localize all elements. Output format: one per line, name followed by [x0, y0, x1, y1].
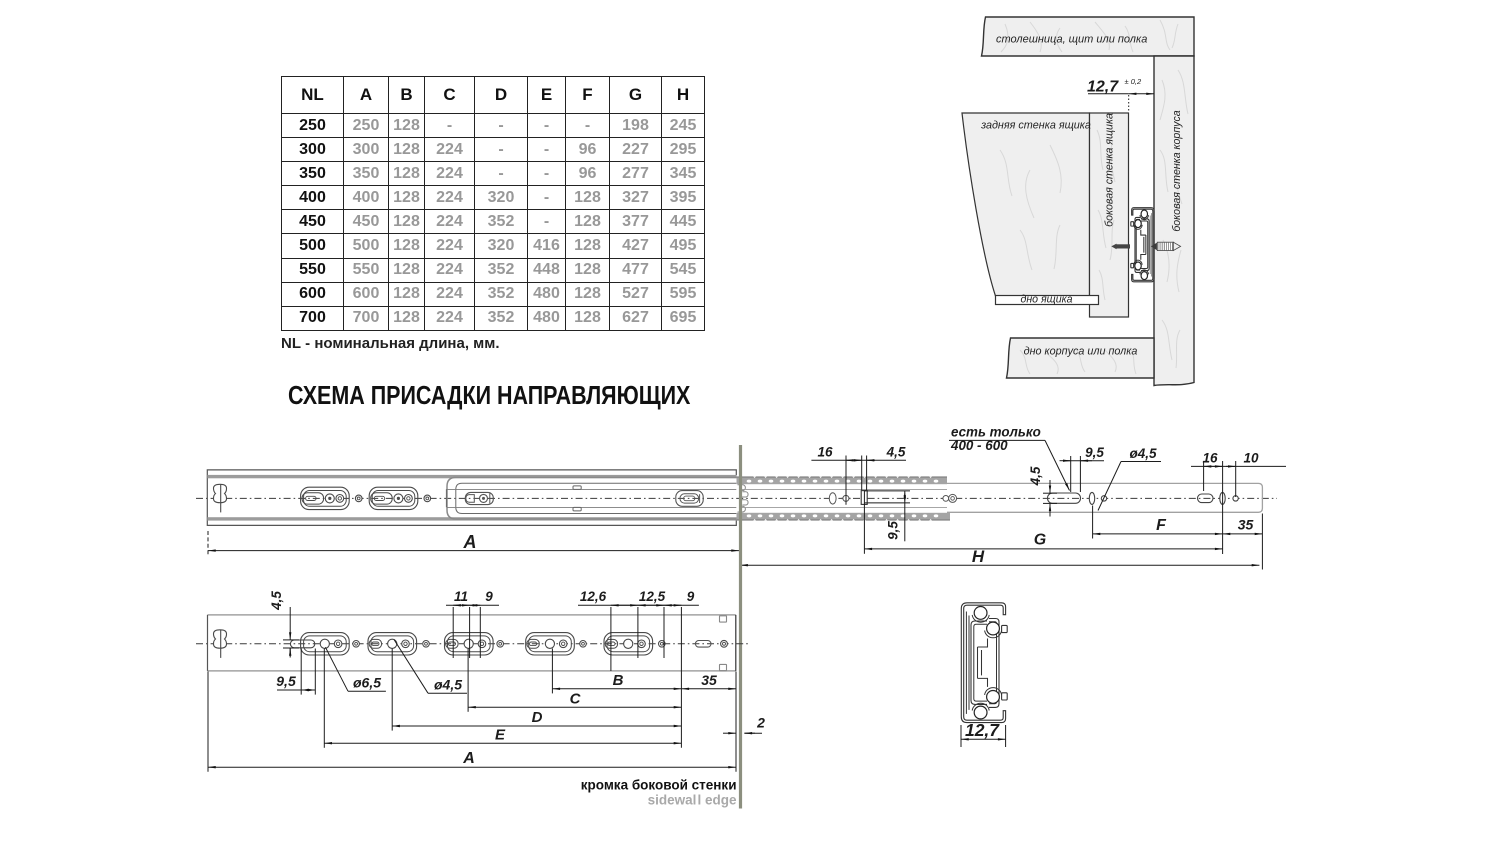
svg-text:H: H — [972, 547, 985, 566]
svg-text:sidewal l edge: sidewal l edge — [648, 793, 737, 808]
svg-text:35: 35 — [701, 672, 717, 688]
svg-text:боковая стенка ящика: боковая стенка ящика — [1104, 113, 1116, 227]
svg-text:G: G — [1034, 532, 1046, 549]
svg-text:9,5: 9,5 — [1085, 445, 1104, 460]
svg-text:дно корпуса или полка: дно корпуса или полка — [1024, 346, 1138, 358]
svg-text:12,6: 12,6 — [580, 589, 607, 604]
svg-text:9: 9 — [485, 589, 493, 604]
svg-text:B: B — [613, 672, 624, 689]
svg-text:A: A — [463, 532, 477, 552]
svg-text:16: 16 — [817, 445, 833, 460]
svg-text:16: 16 — [1202, 451, 1218, 466]
svg-text:4,5: 4,5 — [269, 591, 284, 611]
svg-text:12,5: 12,5 — [639, 589, 666, 604]
svg-text:столешница, щит или полка: столешница, щит или полка — [996, 34, 1147, 46]
svg-text:F: F — [1156, 517, 1167, 534]
svg-text:11: 11 — [454, 589, 468, 604]
svg-text:E: E — [495, 726, 506, 743]
svg-text:10: 10 — [1243, 451, 1259, 466]
svg-text:ø4,5: ø4,5 — [434, 677, 462, 693]
svg-text:D: D — [532, 709, 543, 726]
svg-text:9,5: 9,5 — [886, 521, 901, 540]
svg-text:ø4,5: ø4,5 — [1129, 446, 1157, 461]
svg-text:9,5: 9,5 — [276, 673, 296, 689]
svg-text:кромка боковой стенки: кромка боковой стенки — [581, 778, 737, 793]
svg-text:35: 35 — [1238, 517, 1254, 533]
svg-text:12,7: 12,7 — [1087, 79, 1119, 96]
svg-text:4,5: 4,5 — [1028, 466, 1043, 486]
svg-text:боковая стенка корпуса: боковая стенка корпуса — [1171, 110, 1183, 231]
svg-text:A: A — [462, 750, 475, 767]
svg-text:C: C — [570, 690, 582, 707]
svg-text:2: 2 — [756, 715, 765, 731]
svg-text:4,5: 4,5 — [886, 445, 906, 460]
svg-text:дно ящика: дно ящика — [1021, 294, 1073, 306]
svg-text:задняя стенка ящика: задняя стенка ящика — [980, 120, 1091, 132]
svg-text:± 0,2: ± 0,2 — [1125, 77, 1142, 86]
svg-text:9: 9 — [687, 589, 695, 604]
svg-text:ø6,5: ø6,5 — [353, 675, 381, 691]
svg-text:12,7: 12,7 — [965, 720, 1000, 740]
